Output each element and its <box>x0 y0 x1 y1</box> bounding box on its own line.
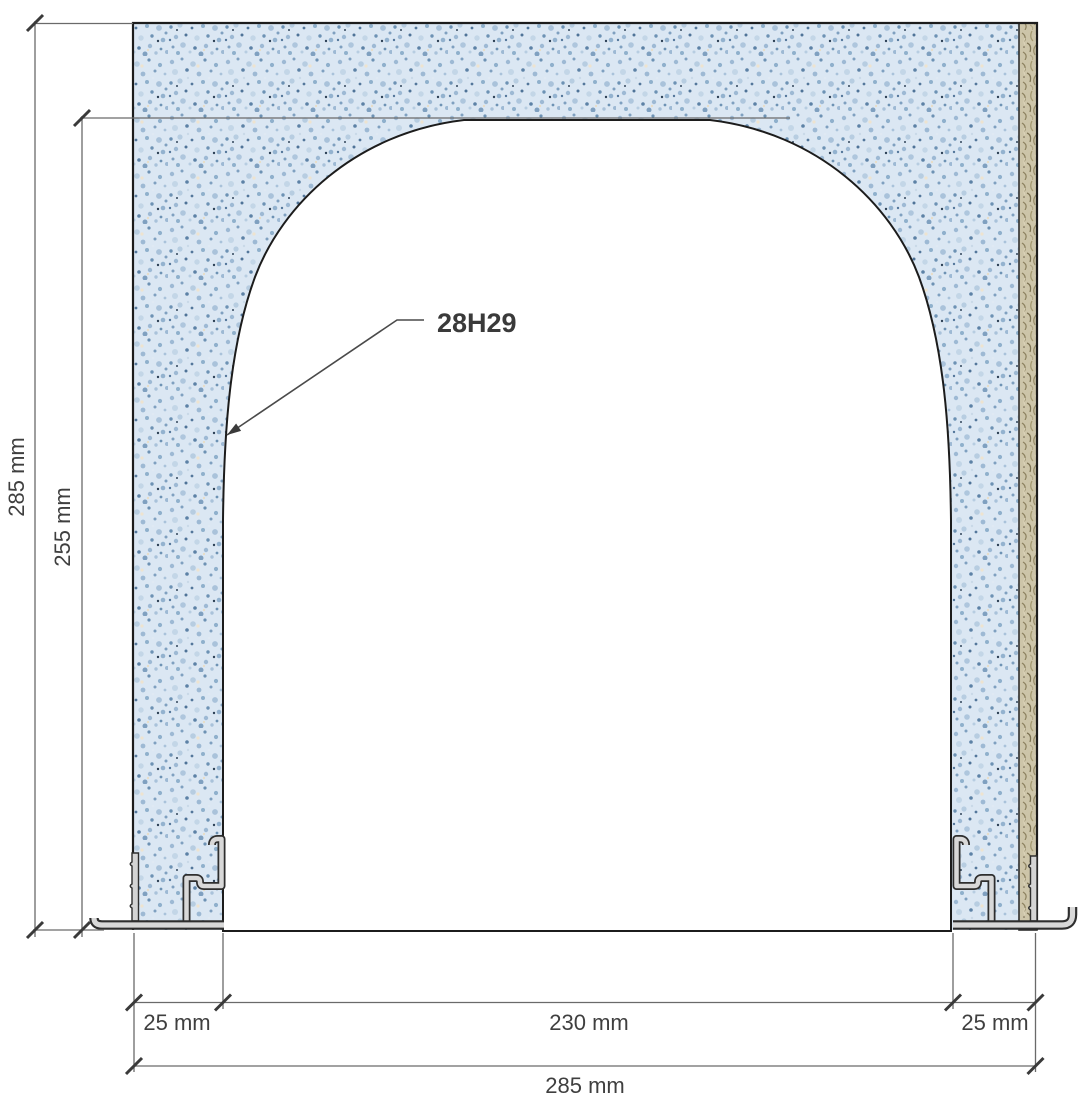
wall-section-drawing: 28H29 285 mm 255 mm 25 mm 230 mm 25 mm 2… <box>0 0 1090 1102</box>
dim-label-bottom-right: 25 mm <box>961 1010 1028 1035</box>
dim-label-bottom-center: 230 mm <box>549 1010 628 1035</box>
arched-opening <box>223 120 951 931</box>
technical-drawing-canvas: 28H29 285 mm 255 mm 25 mm 230 mm 25 mm 2… <box>0 0 1090 1102</box>
dim-label-bottom-left: 25 mm <box>143 1010 210 1035</box>
dim-label-bottom-total: 285 mm <box>545 1073 624 1098</box>
dim-label-left-outer: 285 mm <box>4 437 29 516</box>
wood-strip <box>1019 23 1037 930</box>
left-clip-profile <box>130 853 138 921</box>
dim-label-left-inner: 255 mm <box>50 487 75 566</box>
part-label: 28H29 <box>437 308 517 338</box>
wall-cross-section <box>133 23 1037 931</box>
right-clip-profile <box>1029 856 1037 921</box>
